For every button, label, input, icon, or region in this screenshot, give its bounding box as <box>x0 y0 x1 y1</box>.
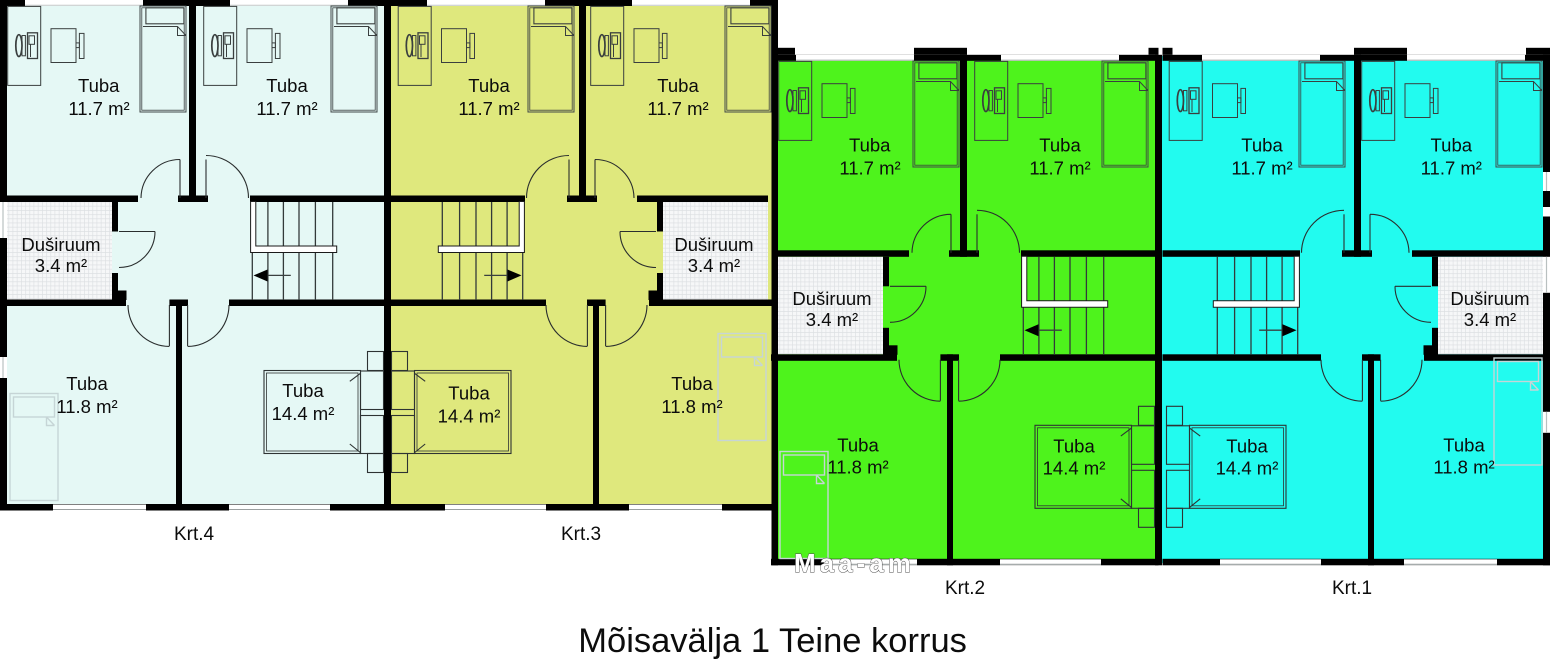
svg-text:Duširuum: Duširuum <box>792 288 871 309</box>
svg-text:Tuba: Tuba <box>1443 435 1485 456</box>
svg-text:3.4 m²: 3.4 m² <box>806 309 858 330</box>
svg-text:Krt.3: Krt.3 <box>561 524 601 545</box>
svg-text:11.8 m²: 11.8 m² <box>661 396 722 417</box>
svg-text:Krt.1: Krt.1 <box>1332 578 1372 599</box>
svg-text:Tuba: Tuba <box>266 75 308 96</box>
svg-text:Tuba: Tuba <box>671 373 713 394</box>
svg-text:11.7 m²: 11.7 m² <box>256 98 317 119</box>
svg-text:Tuba: Tuba <box>1241 135 1283 156</box>
svg-text:Tuba: Tuba <box>78 75 120 96</box>
svg-text:14.4 m²: 14.4 m² <box>438 406 501 427</box>
svg-text:11.7 m²: 11.7 m² <box>1231 158 1292 179</box>
svg-text:14.4 m²: 14.4 m² <box>1216 458 1279 479</box>
svg-text:Tuba: Tuba <box>1053 436 1095 457</box>
svg-text:Tuba: Tuba <box>1431 135 1473 156</box>
svg-text:Duširuum: Duširuum <box>1450 288 1529 309</box>
svg-text:Maa-am: Maa-am <box>794 548 915 578</box>
svg-text:14.4 m²: 14.4 m² <box>272 403 335 424</box>
svg-text:11.7 m²: 11.7 m² <box>458 98 519 119</box>
svg-text:Tuba: Tuba <box>448 383 490 404</box>
svg-text:Tuba: Tuba <box>1039 135 1081 156</box>
svg-text:Krt.4: Krt.4 <box>174 524 215 545</box>
svg-text:Duširuum: Duširuum <box>674 234 753 255</box>
svg-text:3.4 m²: 3.4 m² <box>35 255 87 276</box>
svg-text:Tuba: Tuba <box>282 380 324 401</box>
svg-text:11.7 m²: 11.7 m² <box>1029 158 1090 179</box>
svg-text:11.7 m²: 11.7 m² <box>1421 158 1482 179</box>
svg-text:11.7 m²: 11.7 m² <box>68 98 129 119</box>
svg-text:Tuba: Tuba <box>657 75 699 96</box>
svg-text:Krt.2: Krt.2 <box>945 578 985 599</box>
svg-text:3.4 m²: 3.4 m² <box>688 255 740 276</box>
svg-text:Mõisavälja 1 Teine korrus: Mõisavälja 1 Teine korrus <box>578 622 967 660</box>
svg-text:Tuba: Tuba <box>468 75 510 96</box>
svg-text:11.7 m²: 11.7 m² <box>647 98 708 119</box>
svg-text:11.8 m²: 11.8 m² <box>1433 457 1494 478</box>
svg-text:Tuba: Tuba <box>837 435 879 456</box>
svg-text:3.4 m²: 3.4 m² <box>1464 309 1516 330</box>
svg-text:14.4 m²: 14.4 m² <box>1043 458 1106 479</box>
svg-text:11.7 m²: 11.7 m² <box>839 158 900 179</box>
svg-text:Tuba: Tuba <box>849 135 891 156</box>
svg-text:Duširuum: Duširuum <box>21 234 100 255</box>
svg-text:11.8 m²: 11.8 m² <box>827 457 888 478</box>
svg-text:11.8 m²: 11.8 m² <box>56 396 117 417</box>
svg-text:Tuba: Tuba <box>1226 436 1268 457</box>
svg-text:Tuba: Tuba <box>66 373 108 394</box>
